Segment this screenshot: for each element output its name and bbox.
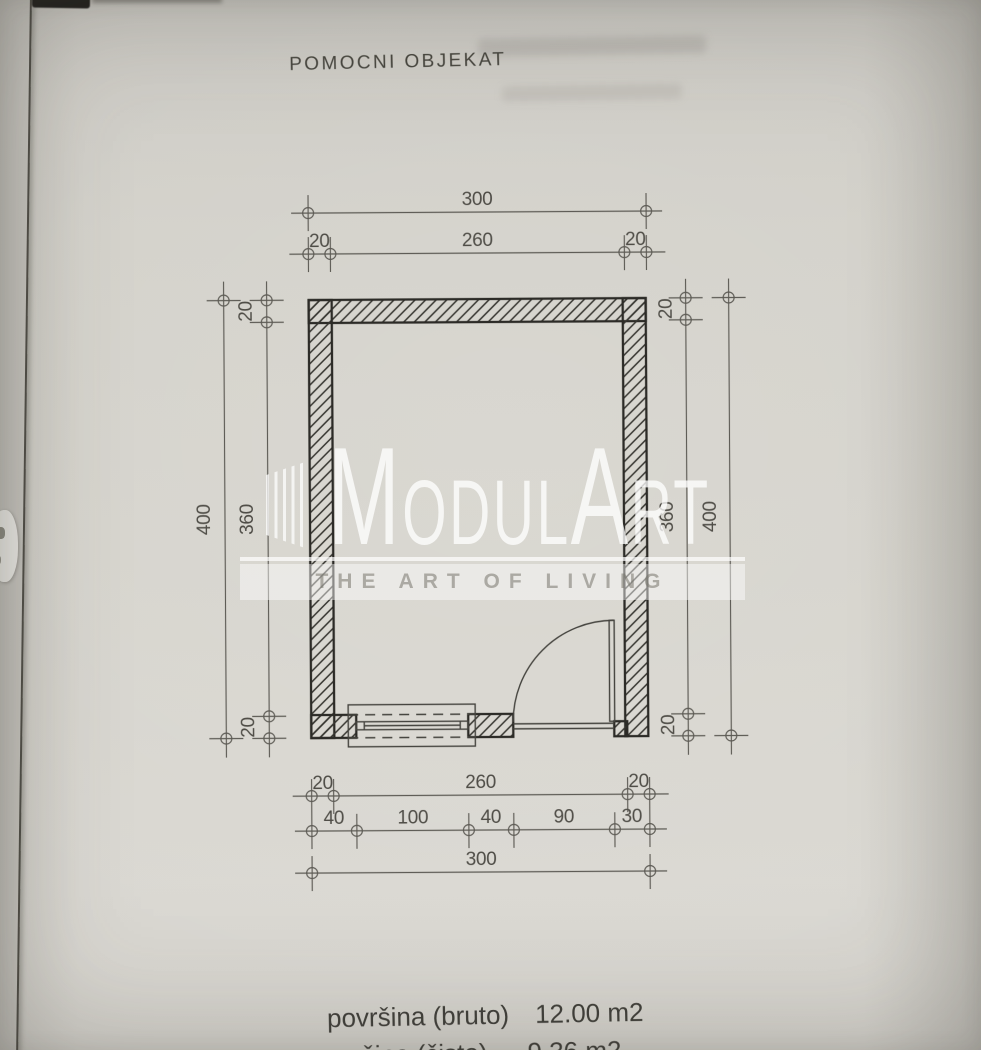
dim-left-total: 400: [194, 504, 215, 535]
door-symbol: [513, 620, 615, 729]
dim-right-wall-top: 20: [656, 299, 677, 320]
dim-left-inner: 360: [237, 504, 258, 535]
dim-bottom-seg-3: 40: [480, 807, 501, 828]
area-gross-label: površina (bruto): [327, 1000, 510, 1035]
dim-bottom-seg-4: 90: [553, 806, 574, 827]
area-net-row: površina (čisto) 9.36 m2: [311, 1035, 622, 1050]
floor-plan-svg: 300 20 260 20 400 20 360 20 20 360 400 2…: [168, 168, 782, 902]
dim-top-wall-left: 20: [309, 231, 330, 252]
drawing-title: POMOCNI OBJEKAT: [289, 49, 507, 76]
area-net-label: površina (čisto): [311, 1038, 488, 1050]
dim-right-wall-bottom: 20: [658, 715, 679, 736]
dim-bottom-wall-left: 20: [312, 773, 333, 794]
dim-top-wall-right: 20: [625, 229, 646, 250]
area-gross-row: površina (bruto) 12.00 m2: [327, 997, 644, 1034]
dim-bottom-wall-right: 20: [628, 771, 649, 792]
drawing-layer: POMOCNI OBJEKAT: [0, 0, 981, 1050]
dim-right-total: 400: [700, 501, 721, 532]
dim-bottom-inner: 260: [465, 772, 496, 793]
area-net-value: 9.36 m2: [527, 1035, 622, 1050]
area-gross-value: 12.00 m2: [535, 997, 644, 1030]
walls: [309, 298, 649, 738]
dim-top-inner: 260: [462, 230, 493, 251]
dim-left-wall-top: 20: [236, 301, 257, 322]
dim-right-inner: 360: [657, 501, 678, 532]
dim-bottom-total: 300: [466, 849, 497, 870]
dim-left-wall-bottom: 20: [238, 717, 259, 738]
dim-bottom-seg-1: 40: [323, 808, 344, 829]
dim-bottom-seg-5: 30: [621, 806, 642, 827]
photographed-floor-plan-page: POMOCNI OBJEKAT: [0, 0, 981, 1050]
dim-bottom-seg-2: 100: [397, 807, 428, 828]
window-symbol: [348, 704, 475, 747]
dim-top-total: 300: [462, 189, 493, 210]
